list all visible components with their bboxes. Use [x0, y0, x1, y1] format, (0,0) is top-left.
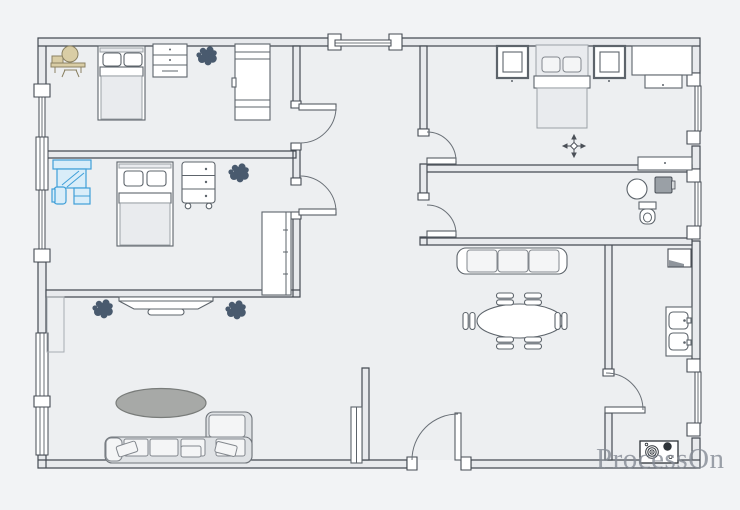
sliding-window — [36, 407, 48, 455]
window — [39, 190, 45, 249]
bed[interactable] — [534, 45, 590, 128]
drawer-cart[interactable] — [182, 162, 215, 209]
toilet[interactable] — [639, 202, 656, 224]
window — [39, 97, 45, 137]
bench-sofa[interactable] — [457, 248, 567, 274]
shoe-cabinet[interactable] — [351, 407, 362, 463]
wall-cabinet[interactable] — [668, 249, 691, 267]
bed[interactable] — [98, 46, 145, 120]
sliding-window — [36, 137, 48, 190]
sideboard[interactable] — [638, 157, 692, 170]
dining-table[interactable] — [477, 304, 563, 338]
window — [695, 86, 701, 131]
nightstand-right[interactable] — [594, 46, 625, 82]
window — [335, 40, 391, 46]
window — [695, 372, 701, 423]
wardrobe[interactable] — [262, 212, 291, 295]
rug[interactable] — [116, 389, 206, 418]
double-sink[interactable] — [666, 307, 692, 356]
floor-plan-canvas: ProcessOn — [0, 0, 740, 510]
floor-plan-page: ProcessOn — [0, 0, 740, 510]
sliding-window — [36, 333, 48, 396]
basin[interactable] — [627, 179, 647, 199]
dresser[interactable] — [153, 44, 187, 77]
entry — [351, 407, 362, 463]
nightstand-left[interactable] — [497, 46, 528, 82]
processon-watermark: ProcessOn — [596, 443, 725, 475]
window — [695, 182, 701, 226]
wardrobe[interactable] — [232, 44, 270, 120]
washing-machine[interactable] — [655, 177, 675, 193]
bed[interactable] — [117, 162, 173, 246]
